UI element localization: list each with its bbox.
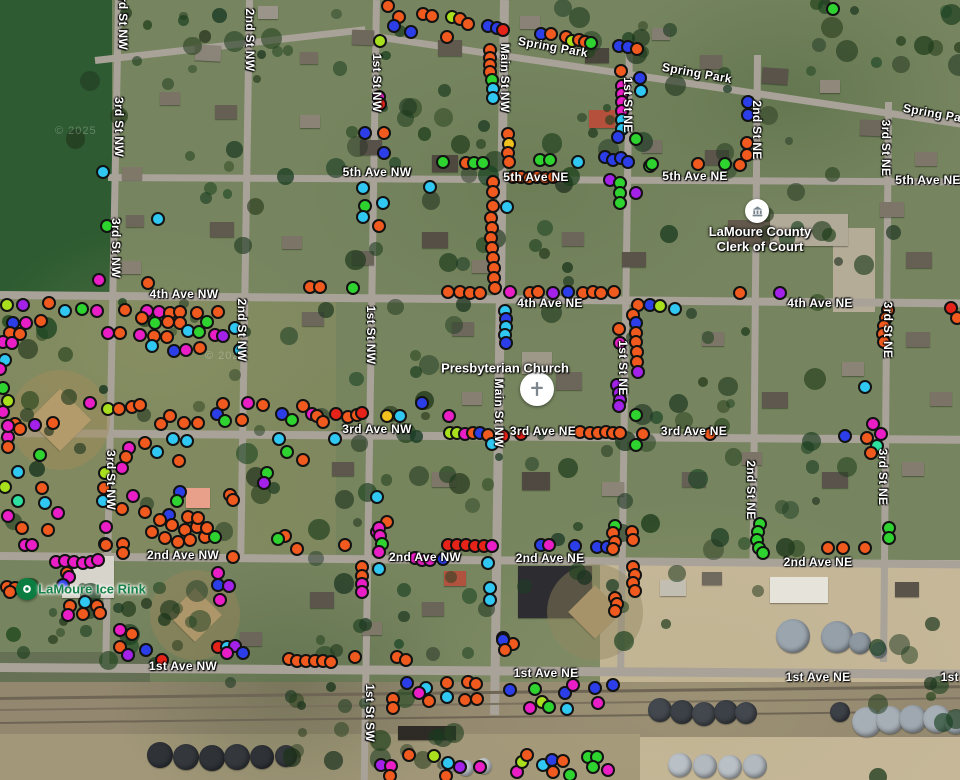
tree <box>892 56 909 73</box>
tree <box>334 573 355 594</box>
map-marker[interactable] <box>150 445 164 459</box>
map-marker[interactable] <box>756 546 770 560</box>
map-marker[interactable] <box>177 416 191 430</box>
map-marker[interactable] <box>503 285 517 299</box>
tree <box>387 299 404 316</box>
map-marker[interactable] <box>483 593 497 607</box>
tree <box>869 768 887 780</box>
map-marker[interactable] <box>126 489 140 503</box>
map-marker[interactable] <box>608 604 622 618</box>
map-marker[interactable] <box>138 505 152 519</box>
map-marker[interactable] <box>42 296 56 310</box>
tree <box>298 728 307 737</box>
map-marker[interactable] <box>542 700 556 714</box>
street-label: 4th Ave NE <box>517 296 582 310</box>
grain-silo <box>821 621 853 653</box>
map-marker[interactable] <box>498 643 512 657</box>
tree <box>476 139 485 148</box>
map-marker[interactable] <box>75 302 89 316</box>
street-label: 1st Ave NE <box>941 670 960 684</box>
map-marker[interactable] <box>571 155 585 169</box>
tree <box>462 647 474 659</box>
map-marker[interactable] <box>213 593 227 607</box>
tree <box>886 225 901 240</box>
map-marker[interactable] <box>373 34 387 48</box>
tree <box>601 445 612 456</box>
map-marker[interactable] <box>860 431 874 445</box>
map-marker[interactable] <box>629 186 643 200</box>
map-marker[interactable] <box>220 646 234 660</box>
map-marker[interactable] <box>125 627 139 641</box>
map-marker[interactable] <box>1 509 15 523</box>
map-marker[interactable] <box>218 414 232 428</box>
map-marker[interactable] <box>838 429 852 443</box>
map-marker[interactable] <box>372 562 386 576</box>
map-marker[interactable] <box>399 653 413 667</box>
map-marker[interactable] <box>328 432 342 446</box>
map-marker[interactable] <box>733 286 747 300</box>
tree <box>854 255 874 275</box>
building <box>300 115 320 128</box>
map-marker[interactable] <box>183 533 197 547</box>
map-marker[interactable] <box>33 448 47 462</box>
map-marker[interactable] <box>241 396 255 410</box>
map-marker[interactable] <box>629 132 643 146</box>
map-marker[interactable] <box>636 427 650 441</box>
tree <box>702 331 715 344</box>
map-marker[interactable] <box>586 760 600 774</box>
map-marker[interactable] <box>172 454 186 468</box>
map-marker[interactable] <box>139 643 153 657</box>
tree <box>398 611 409 622</box>
map-marker[interactable] <box>563 768 577 780</box>
map-marker[interactable] <box>236 646 250 660</box>
map-marker[interactable] <box>226 550 240 564</box>
map-marker[interactable] <box>133 328 147 342</box>
map-marker[interactable] <box>256 398 270 412</box>
map-marker[interactable] <box>16 298 30 312</box>
map-marker[interactable] <box>381 0 395 13</box>
street-label: 3rd St NE <box>876 449 890 506</box>
tree <box>542 133 562 153</box>
tree <box>603 104 611 112</box>
grain-silo <box>735 702 757 724</box>
courthouse-icon[interactable] <box>745 199 769 223</box>
map-marker[interactable] <box>442 409 456 423</box>
map-marker[interactable] <box>826 2 840 16</box>
tree <box>257 50 266 59</box>
map-marker[interactable] <box>502 155 516 169</box>
map-marker[interactable] <box>285 413 299 427</box>
map-marker[interactable] <box>440 30 454 44</box>
tree <box>569 7 590 28</box>
map-marker[interactable] <box>41 523 55 537</box>
street-label: 1st St NE <box>616 340 630 395</box>
map-marker[interactable] <box>346 281 360 295</box>
map-marker[interactable] <box>58 304 72 318</box>
map-marker[interactable] <box>628 584 642 598</box>
tree <box>871 57 882 68</box>
map-marker[interactable] <box>400 676 414 690</box>
grain-silo <box>830 702 850 722</box>
map-marker[interactable] <box>821 541 835 555</box>
map-marker[interactable] <box>370 490 384 504</box>
map-marker[interactable] <box>191 511 205 525</box>
map-marker[interactable] <box>488 281 502 295</box>
map-marker[interactable] <box>372 545 386 559</box>
map-marker[interactable] <box>591 696 605 710</box>
map-marker[interactable] <box>290 542 304 556</box>
building <box>462 392 482 405</box>
map-marker[interactable] <box>387 19 401 33</box>
map-marker[interactable] <box>192 325 206 339</box>
map-marker[interactable] <box>606 678 620 692</box>
map-marker[interactable] <box>25 538 39 552</box>
grain-silo <box>199 745 225 771</box>
map-marker[interactable] <box>393 409 407 423</box>
tree <box>153 582 166 595</box>
street-label: 2nd St NW <box>235 299 249 362</box>
map-marker[interactable] <box>614 64 628 78</box>
map-marker[interactable] <box>528 682 542 696</box>
map-marker[interactable] <box>481 556 495 570</box>
tree <box>577 113 587 123</box>
map-marker[interactable] <box>440 676 454 690</box>
map-marker[interactable] <box>566 678 580 692</box>
tree <box>338 699 352 713</box>
map-marker[interactable] <box>626 533 640 547</box>
map-marker[interactable] <box>461 17 475 31</box>
map-marker[interactable] <box>427 749 441 763</box>
tree <box>61 389 77 405</box>
map-marker[interactable] <box>470 692 484 706</box>
map-marker[interactable] <box>112 402 126 416</box>
map-marker[interactable] <box>613 426 627 440</box>
tree <box>896 36 906 46</box>
building <box>762 392 788 408</box>
tree <box>812 38 826 52</box>
map-marker[interactable] <box>280 445 294 459</box>
building <box>902 462 924 476</box>
satellite-map[interactable]: Spring ParkSpring ParkSpring Park5th Ave… <box>0 0 960 780</box>
map-marker[interactable] <box>113 326 127 340</box>
tree <box>316 635 326 645</box>
grain-silo <box>250 745 274 769</box>
map-marker[interactable] <box>601 763 615 777</box>
tree <box>324 751 343 770</box>
map-marker[interactable] <box>634 84 648 98</box>
map-marker[interactable] <box>180 434 194 448</box>
map-marker[interactable] <box>355 406 369 420</box>
tree <box>660 225 678 243</box>
map-marker[interactable] <box>453 760 467 774</box>
map-marker[interactable] <box>415 396 429 410</box>
map-marker[interactable] <box>151 212 165 226</box>
map-marker[interactable] <box>486 185 500 199</box>
map-marker[interactable] <box>316 415 330 429</box>
map-marker[interactable] <box>216 397 230 411</box>
tree <box>925 617 939 631</box>
map-marker[interactable] <box>13 422 27 436</box>
map-marker[interactable] <box>523 701 537 715</box>
map-marker[interactable] <box>653 299 667 313</box>
lamoure-county-clerk-of-court-label[interactable]: LaMoure CountyClerk of Court <box>709 225 812 255</box>
map-marker[interactable] <box>165 518 179 532</box>
tree <box>421 412 430 421</box>
map-marker[interactable] <box>631 365 645 379</box>
map-marker[interactable] <box>0 298 14 312</box>
street-label: 1st St NW <box>370 54 384 113</box>
map-marker[interactable] <box>90 304 104 318</box>
map-marker[interactable] <box>629 408 643 422</box>
map-marker[interactable] <box>950 311 960 325</box>
tree <box>18 339 38 359</box>
map-marker[interactable] <box>500 200 514 214</box>
map-marker[interactable] <box>404 25 418 39</box>
map-marker[interactable] <box>226 493 240 507</box>
grain-silo <box>648 698 672 722</box>
tree <box>113 603 124 614</box>
tree <box>775 500 789 514</box>
map-marker[interactable] <box>348 650 362 664</box>
map-marker[interactable] <box>15 521 29 535</box>
map-marker[interactable] <box>222 579 236 593</box>
map-marker[interactable] <box>257 476 271 490</box>
tree <box>445 316 463 334</box>
terrain-area <box>0 734 640 780</box>
map-marker[interactable] <box>440 690 454 704</box>
building <box>300 52 318 64</box>
map-marker[interactable] <box>296 453 310 467</box>
tree <box>825 167 840 182</box>
map-marker[interactable] <box>556 754 570 768</box>
tree <box>247 198 264 215</box>
map-marker[interactable] <box>476 156 490 170</box>
map-marker[interactable] <box>858 380 872 394</box>
map-marker[interactable] <box>621 155 635 169</box>
map-marker[interactable] <box>376 196 390 210</box>
map-marker[interactable] <box>313 280 327 294</box>
tree <box>193 401 204 412</box>
map-marker[interactable] <box>594 286 608 300</box>
map-marker[interactable] <box>38 496 52 510</box>
street-label: 2nd St NE <box>744 460 758 519</box>
map-marker[interactable] <box>473 286 487 300</box>
map-marker[interactable] <box>5 336 19 350</box>
map-marker[interactable] <box>836 541 850 555</box>
map-marker[interactable] <box>355 585 369 599</box>
street-label: 4th Ave NW <box>150 287 219 301</box>
map-marker[interactable] <box>496 23 510 37</box>
tree <box>335 490 353 508</box>
map-marker[interactable] <box>1 440 15 454</box>
map-marker[interactable] <box>193 341 207 355</box>
map-marker[interactable] <box>61 608 75 622</box>
map-marker[interactable] <box>216 329 230 343</box>
tree <box>49 608 58 617</box>
tree <box>663 23 677 37</box>
map-marker[interactable] <box>272 432 286 446</box>
map-marker[interactable] <box>145 339 159 353</box>
building <box>186 488 210 508</box>
map-marker[interactable] <box>383 769 397 780</box>
tree <box>525 457 539 471</box>
map-marker[interactable] <box>35 481 49 495</box>
tree <box>162 78 174 90</box>
map-marker[interactable] <box>546 765 560 779</box>
tree <box>537 220 553 236</box>
map-marker[interactable] <box>158 531 172 545</box>
map-marker[interactable] <box>93 606 107 620</box>
grain-silo <box>743 754 767 778</box>
tree <box>558 458 578 478</box>
map-marker[interactable] <box>402 748 416 762</box>
map-marker[interactable] <box>121 648 135 662</box>
map-marker[interactable] <box>520 748 534 762</box>
map-marker[interactable] <box>473 760 487 774</box>
tree <box>185 151 195 161</box>
map-marker[interactable] <box>160 330 174 344</box>
map-marker[interactable] <box>377 126 391 140</box>
map-marker[interactable] <box>499 336 513 350</box>
church-icon[interactable] <box>520 372 554 406</box>
map-marker[interactable] <box>773 286 787 300</box>
tree <box>224 161 235 172</box>
map-marker[interactable] <box>46 416 60 430</box>
grain-silo <box>668 753 692 777</box>
tree <box>698 377 709 388</box>
grain-silo <box>147 742 173 768</box>
street-label: 4th Ave NE <box>787 296 852 310</box>
map-marker[interactable] <box>83 396 97 410</box>
map-marker[interactable] <box>439 769 453 780</box>
tree <box>21 391 39 409</box>
map-marker[interactable] <box>588 681 602 695</box>
map-marker[interactable] <box>170 494 184 508</box>
map-marker[interactable] <box>91 553 105 567</box>
building <box>915 152 937 166</box>
map-marker[interactable] <box>133 398 147 412</box>
map-marker[interactable] <box>858 541 872 555</box>
map-marker[interactable] <box>377 146 391 160</box>
map-marker[interactable] <box>612 322 626 336</box>
map-marker[interactable] <box>668 302 682 316</box>
map-marker[interactable] <box>485 539 499 553</box>
presbyterian-church-label[interactable]: Presbyterian Church <box>441 362 569 377</box>
map-marker[interactable] <box>324 655 338 669</box>
grain-silo <box>692 702 716 726</box>
tree <box>179 12 188 21</box>
map-marker[interactable] <box>3 585 17 599</box>
map-marker[interactable] <box>135 311 149 325</box>
map-marker[interactable] <box>28 418 42 432</box>
map-marker[interactable] <box>118 303 132 317</box>
map-marker[interactable] <box>179 343 193 357</box>
map-marker[interactable] <box>11 494 25 508</box>
building <box>660 580 686 596</box>
street-label: 1st Ave NE <box>786 670 851 684</box>
map-marker[interactable] <box>542 538 556 552</box>
map-marker[interactable] <box>11 465 25 479</box>
tree <box>606 579 619 592</box>
rink-icon[interactable] <box>16 578 38 600</box>
map-marker[interactable] <box>356 181 370 195</box>
map-marker[interactable] <box>425 9 439 23</box>
map-marker[interactable] <box>423 180 437 194</box>
map-marker[interactable] <box>358 126 372 140</box>
map-marker[interactable] <box>296 399 310 413</box>
map-marker[interactable] <box>163 409 177 423</box>
map-marker[interactable] <box>356 210 370 224</box>
tree <box>141 598 152 609</box>
map-marker[interactable] <box>99 520 113 534</box>
building <box>422 602 444 616</box>
tree <box>605 115 615 125</box>
grain-silo <box>776 619 810 653</box>
map-marker[interactable] <box>34 314 48 328</box>
map-marker[interactable] <box>96 165 110 179</box>
map-marker[interactable] <box>645 157 659 171</box>
map-marker[interactable] <box>166 432 180 446</box>
map-marker[interactable] <box>422 694 436 708</box>
tree <box>462 588 478 604</box>
map-marker[interactable] <box>235 413 249 427</box>
map-marker[interactable] <box>543 153 557 167</box>
tree <box>143 20 153 30</box>
tree <box>254 425 265 436</box>
map-marker[interactable] <box>607 285 621 299</box>
building <box>761 67 788 85</box>
map-marker[interactable] <box>76 607 90 621</box>
tree <box>345 250 365 270</box>
map-marker[interactable] <box>630 42 644 56</box>
grain-silo <box>718 755 742 779</box>
map-marker[interactable] <box>116 546 130 560</box>
map-marker[interactable] <box>503 683 517 697</box>
map-marker[interactable] <box>633 71 647 85</box>
map-marker[interactable] <box>211 305 225 319</box>
map-marker[interactable] <box>92 273 106 287</box>
tree <box>539 248 550 259</box>
map-marker[interactable] <box>436 155 450 169</box>
map-marker[interactable] <box>148 316 162 330</box>
map-marker[interactable] <box>271 532 285 546</box>
tree <box>172 640 182 650</box>
street-label: 3rd Ave NE <box>510 424 576 438</box>
tree <box>940 5 953 18</box>
map-marker[interactable] <box>372 219 386 233</box>
tree <box>369 242 384 257</box>
map-marker[interactable] <box>380 409 394 423</box>
tree <box>868 694 888 714</box>
map-marker[interactable] <box>145 525 159 539</box>
map-marker[interactable] <box>191 416 205 430</box>
map-marker[interactable] <box>882 531 896 545</box>
map-marker[interactable] <box>386 701 400 715</box>
map-marker[interactable] <box>613 196 627 210</box>
map-marker[interactable] <box>612 399 626 413</box>
tree <box>308 551 323 566</box>
map-marker[interactable] <box>560 702 574 716</box>
road <box>361 0 380 780</box>
map-marker[interactable] <box>606 542 620 556</box>
map-marker[interactable] <box>99 538 113 552</box>
map-marker[interactable] <box>469 677 483 691</box>
map-marker[interactable] <box>338 538 352 552</box>
tree <box>188 65 196 73</box>
map-marker[interactable] <box>51 506 65 520</box>
lamoure-ice-rink-label[interactable]: LaMoure Ice Rink <box>38 583 146 598</box>
